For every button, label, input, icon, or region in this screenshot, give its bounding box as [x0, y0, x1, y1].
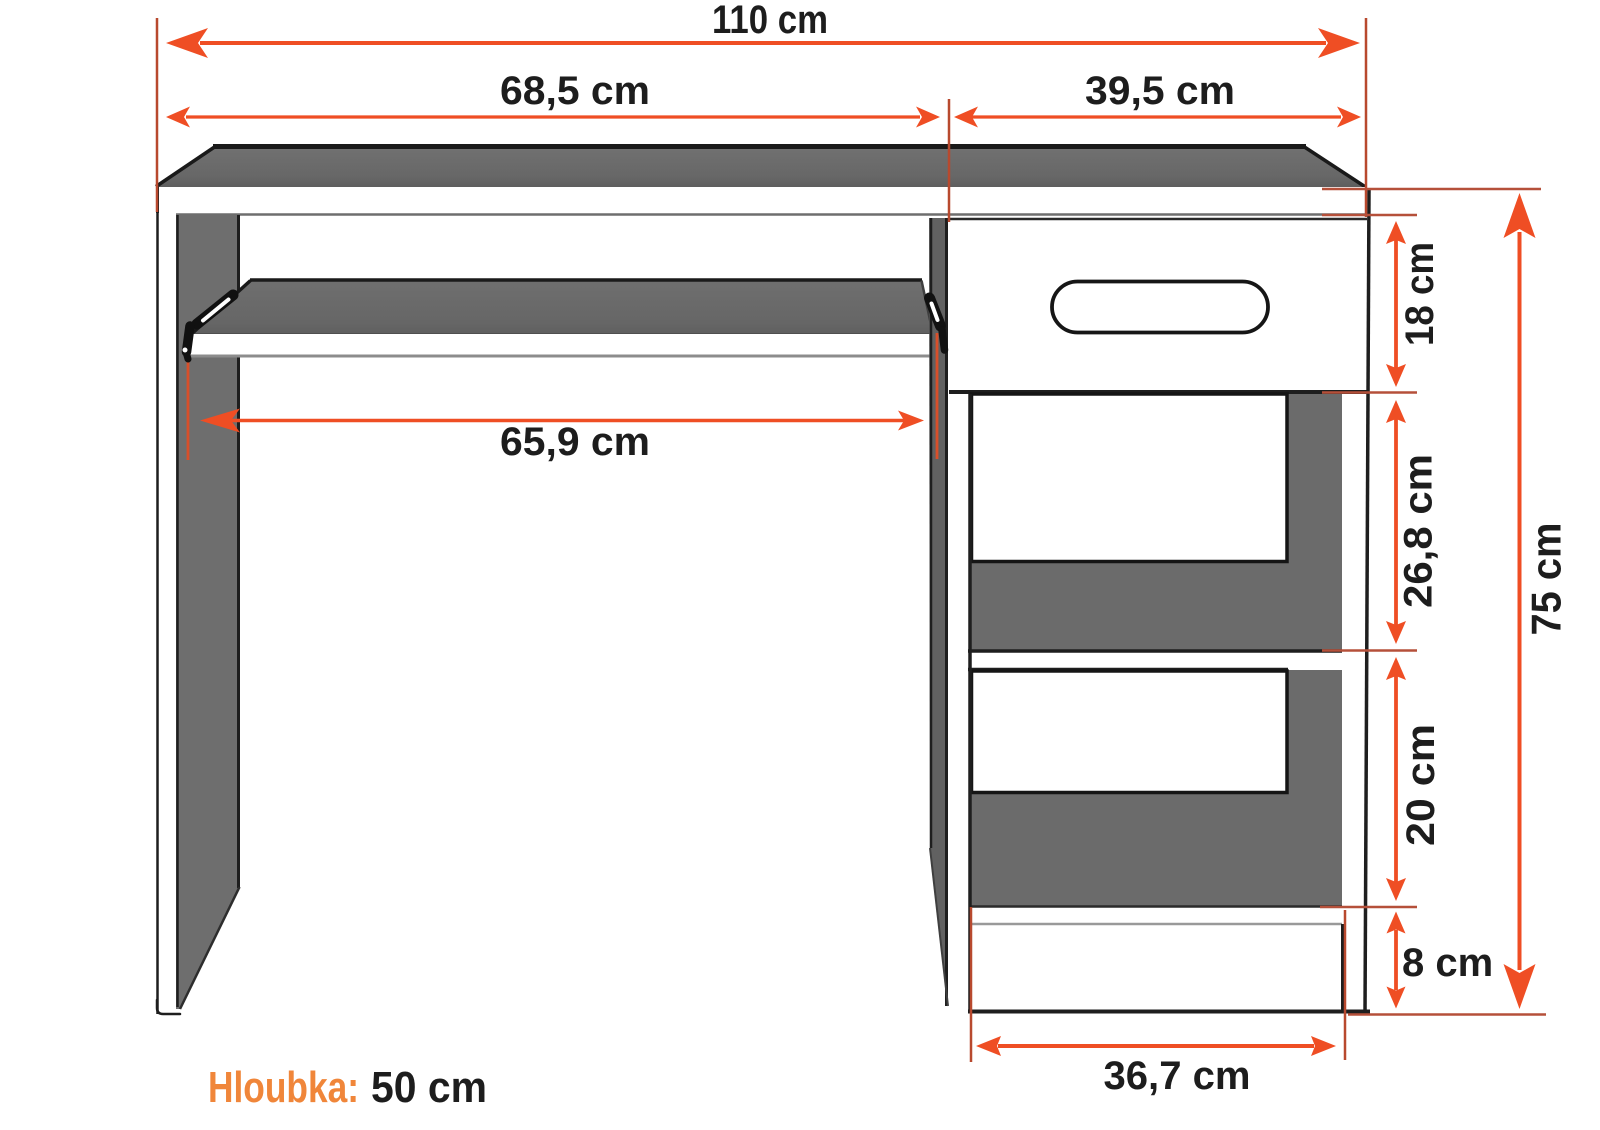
- svg-text:110 cm: 110 cm: [712, 0, 828, 42]
- svg-text:39,5 cm: 39,5 cm: [1085, 69, 1235, 113]
- svg-text:36,7 cm: 36,7 cm: [1104, 1054, 1251, 1098]
- svg-text:8 cm: 8 cm: [1402, 941, 1493, 985]
- svg-text:26,8 cm: 26,8 cm: [1397, 454, 1441, 608]
- svg-text:Hloubka:50 cm: Hloubka:50 cm: [208, 1063, 487, 1112]
- svg-text:75 cm: 75 cm: [1523, 523, 1570, 636]
- svg-text:65,9 cm: 65,9 cm: [500, 420, 650, 464]
- svg-text:68,5 cm: 68,5 cm: [500, 69, 650, 113]
- svg-text:20 cm: 20 cm: [1399, 724, 1443, 846]
- svg-text:18 cm: 18 cm: [1398, 242, 1442, 346]
